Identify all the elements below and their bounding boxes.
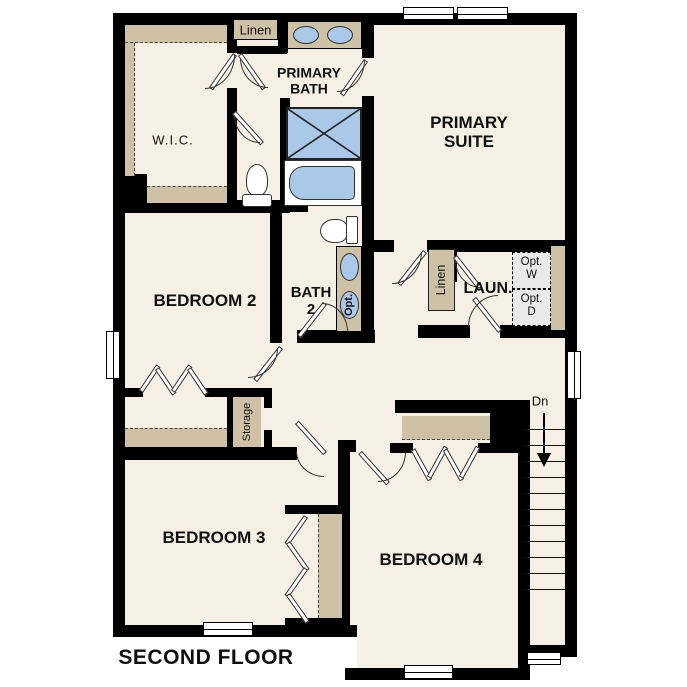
vanity-sink-right <box>327 26 353 44</box>
stair-step <box>523 589 565 590</box>
primary-bath-label: PRIMARY BATH <box>277 65 341 96</box>
wic-shelf-top <box>125 25 227 43</box>
stair-step <box>523 493 565 494</box>
stair-step <box>523 509 565 510</box>
bedroom4-closet-shelf <box>402 416 490 440</box>
laundry-label: LAUN. <box>464 280 513 298</box>
stair-step <box>523 541 565 542</box>
laundry-right-shelf <box>551 246 565 330</box>
wall-bedroom3-closet-bottom <box>285 618 342 627</box>
vanity-sink-left <box>293 26 319 44</box>
stair-step <box>523 573 565 574</box>
stair-step <box>523 525 565 526</box>
wall-stairs-top-block <box>503 400 518 450</box>
wic-shelf-left <box>125 43 135 176</box>
bedroom4-label: BEDROOM 4 <box>380 550 483 570</box>
wic-shelf-bottom <box>147 186 227 203</box>
bath2-label: BATH 2 <box>291 285 332 319</box>
stairs-direction-line <box>543 413 545 455</box>
bedroom2-label: BEDROOM 2 <box>154 291 257 311</box>
floor-title: SECOND FLOOR <box>118 646 293 670</box>
wall-bedroom4-top-stub-left <box>338 440 356 452</box>
toilet-bath2-tank <box>346 216 358 244</box>
stairs-direction-arrow <box>537 453 551 467</box>
wall-wic-corner-block <box>125 174 147 203</box>
bath2-sink <box>340 253 359 281</box>
bath2-opt-sink-label: Opt. <box>343 294 355 316</box>
wall-bedroom3-top <box>113 447 297 460</box>
optional-washer: Opt. W <box>512 252 551 289</box>
window-stairwell <box>527 652 561 665</box>
storage-label: Storage <box>241 403 253 442</box>
floor-plan: Linen Opt. Linen Opt. W Opt. D Storage <box>0 0 687 687</box>
wic-label: W.I.C. <box>152 133 193 148</box>
wall-bathcol-right-lower <box>362 96 374 244</box>
optional-dryer: Opt. D <box>512 289 551 326</box>
wall-bedroom2-right <box>270 213 282 343</box>
toilet-primary-bowl <box>246 164 268 196</box>
window-stairs-right <box>567 351 581 399</box>
wall-bedroom3-closet-top <box>285 505 342 514</box>
laundry-linen-label: Linen <box>434 265 448 296</box>
window-top-2 <box>457 7 508 20</box>
wall-bathcol-right-upper <box>362 13 374 58</box>
bedroom3-label: BEDROOM 3 <box>163 528 266 548</box>
wall-primarysuite-bottom-left <box>362 240 394 252</box>
window-top-1 <box>403 7 454 20</box>
bedroom2-closet-shelf <box>125 428 227 447</box>
stair-step <box>523 557 565 558</box>
toilet-primary-tank <box>242 194 272 207</box>
wall-storage-stub-top <box>264 388 272 408</box>
wall-wic-right-lower <box>227 88 237 204</box>
shower <box>286 107 362 160</box>
window-bedroom2 <box>106 331 120 379</box>
wall-bath2-sink-right <box>362 244 374 332</box>
bedroom3-closet-shelf <box>318 514 342 618</box>
wall-storage-stub-bottom <box>264 430 272 447</box>
wall-bedroom4-closet-top <box>395 400 513 413</box>
primary-suite-label: PRIMARY SUITE <box>430 113 508 151</box>
window-bedroom4 <box>404 665 453 679</box>
window-bedroom3 <box>203 622 253 636</box>
wall-laundry-bottom-left <box>418 325 470 338</box>
linen-top-label: Linen <box>240 23 272 38</box>
stairs-dn-label: Dn <box>532 394 549 409</box>
toilet-bath2-bowl <box>320 219 348 243</box>
wall-left <box>113 13 125 637</box>
tub <box>289 166 355 200</box>
stair-step <box>523 477 565 478</box>
